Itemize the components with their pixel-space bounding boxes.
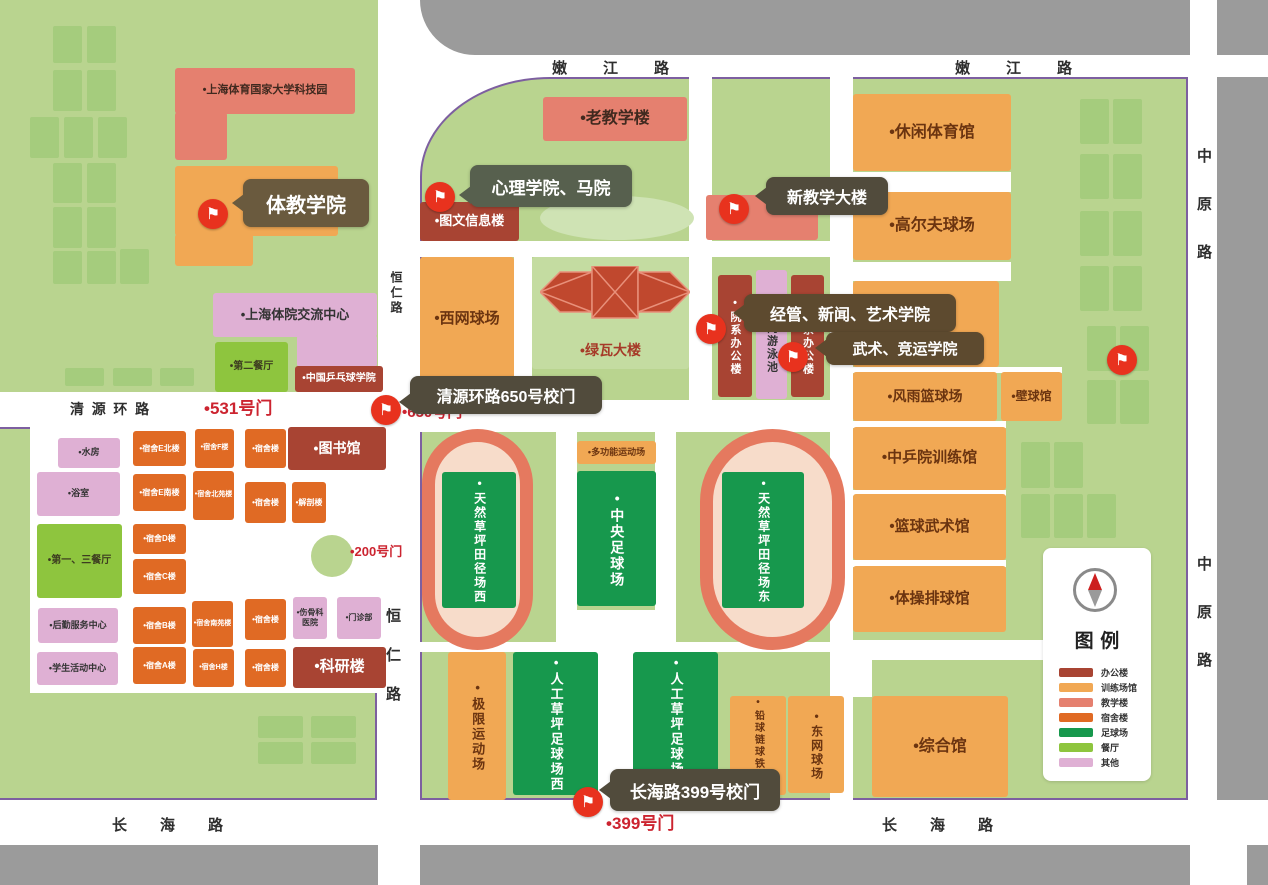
indoor-pool: •室内游泳池 bbox=[756, 270, 787, 399]
east-tennis-court: •东网球场 bbox=[788, 696, 844, 793]
tree-block bbox=[1080, 99, 1109, 144]
tooltip-xinli-xueyuan[interactable]: 心理学院、马院 bbox=[470, 165, 632, 207]
tree-block bbox=[1087, 380, 1116, 424]
dorm-b: •宿舍B楼 bbox=[133, 607, 186, 644]
natural-turf-west-label: •天然草坪田径场西 bbox=[472, 476, 485, 604]
library: •图书馆 bbox=[288, 427, 386, 470]
gymnastics-volleyball-hall-label: •体操排球馆 bbox=[889, 590, 969, 609]
tree-block bbox=[1080, 266, 1109, 311]
tree-block bbox=[1054, 494, 1083, 538]
sidewalk-zhongyuan bbox=[1190, 0, 1217, 885]
tree-block bbox=[258, 716, 303, 738]
tree-block bbox=[87, 163, 116, 203]
dorm-e-south-label: •宿舍E南楼 bbox=[139, 488, 179, 498]
dorm-1: •宿舍楼 bbox=[245, 429, 286, 468]
ctt-training-hall-label: •中乒院训练馆 bbox=[882, 449, 977, 468]
no2-dining-hall: •第二餐厅 bbox=[215, 342, 288, 392]
legend-label: 训练场馆 bbox=[1101, 681, 1137, 694]
tree-block bbox=[113, 368, 152, 386]
dorm-h-label: •宿舍H楼 bbox=[199, 664, 228, 673]
library-info-building-label: •图文信息楼 bbox=[435, 213, 505, 229]
tree-block bbox=[30, 117, 59, 158]
tijiao-college-wing bbox=[175, 234, 253, 266]
natural-turf-east: •天然草坪田径场东 bbox=[722, 472, 804, 608]
table-tennis-college-label: •中国乒乓球学院 bbox=[302, 373, 376, 386]
student-center-label: •学生活动中心 bbox=[49, 663, 106, 674]
flag-marker-gate-650[interactable]: ⚑ bbox=[371, 395, 401, 425]
tooltip-wushu-jingyun-pointer bbox=[815, 339, 827, 357]
dorm-4-label: •宿舍楼 bbox=[252, 663, 279, 673]
dorm-e-north: •宿舍E北楼 bbox=[133, 431, 186, 466]
tooltip-xinli-xueyuan-pointer bbox=[459, 186, 471, 204]
legend-item: 足球场 bbox=[1059, 726, 1128, 738]
dorm-a: •宿舍A楼 bbox=[133, 647, 186, 684]
basketball-wushu-hall: •篮球武术馆 bbox=[853, 494, 1006, 560]
exchange-center-wing bbox=[297, 335, 377, 367]
tree-block bbox=[53, 251, 82, 284]
inner-road-18 bbox=[420, 241, 830, 257]
water-room: •水房 bbox=[58, 438, 120, 468]
tree-block bbox=[160, 368, 194, 386]
legend-swatch bbox=[1059, 728, 1093, 737]
legend-item: 训练场馆 bbox=[1059, 681, 1137, 693]
clinic: •门诊部 bbox=[337, 597, 381, 639]
dorm-beiyuan-label: •宿舍北苑楼 bbox=[195, 491, 232, 500]
osteopathy-hospital: •伤骨科医院 bbox=[293, 597, 327, 639]
tree-block bbox=[311, 742, 356, 764]
anatomy-building: •解剖楼 bbox=[292, 482, 326, 523]
west-tennis-court-label: •西网球场 bbox=[434, 310, 499, 329]
legend-swatch bbox=[1059, 713, 1093, 722]
road-label-zhongyuan-bottom: 中原路 bbox=[1193, 556, 1214, 700]
extreme-sports-field: •极限运动场 bbox=[448, 652, 506, 800]
legend-label: 办公楼 bbox=[1101, 666, 1128, 679]
tooltip-wushu-jingyun[interactable]: 武术、竞运学院 bbox=[826, 332, 984, 365]
osteopathy-hospital-label: •伤骨科医院 bbox=[293, 608, 327, 628]
artificial-turf-west-label: •人工草坪足球场西 bbox=[548, 655, 562, 792]
campus-map: •上海体育国家大学科技园•上海体院交流中心•第二餐厅•中国乒乓球学院•水房•浴室… bbox=[0, 0, 1268, 885]
inner-road-10 bbox=[830, 640, 1045, 660]
tooltip-tijiao-xueyuan-pointer bbox=[232, 194, 244, 212]
dorm-d-label: •宿舍D楼 bbox=[143, 534, 176, 544]
compass-icon bbox=[1073, 568, 1117, 612]
tree-block bbox=[311, 716, 356, 738]
flag-marker-yuanxi-b[interactable]: ⚑ bbox=[778, 342, 808, 372]
legend-label: 餐厅 bbox=[1101, 741, 1119, 754]
road-changhai-corner bbox=[1247, 845, 1268, 885]
road-label-hengren-top: 恒仁路 bbox=[388, 271, 405, 316]
basketball-wushu-hall-label: •篮球武术馆 bbox=[889, 518, 969, 537]
legend-label: 其他 bbox=[1101, 756, 1119, 769]
no2-dining-hall-label: •第二餐厅 bbox=[230, 361, 274, 374]
loop-center bbox=[311, 535, 353, 577]
dorm-2: •宿舍楼 bbox=[245, 482, 286, 523]
road-label-changhai-west: 长海路 bbox=[112, 814, 256, 835]
library-label: •图书馆 bbox=[314, 440, 361, 458]
tree-block bbox=[87, 207, 116, 248]
tree-block bbox=[53, 207, 82, 248]
flag-marker-tijiao[interactable]: ⚑ bbox=[198, 199, 228, 229]
tree-block bbox=[1113, 99, 1142, 144]
west-tennis-court: •西网球场 bbox=[420, 257, 514, 381]
dorm-4: •宿舍楼 bbox=[245, 649, 286, 687]
science-park-label: •上海体育国家大学科技园 bbox=[203, 84, 328, 98]
east-tennis-court-label: •东网球场 bbox=[809, 709, 822, 781]
road-label-nenjiang-east: 嫩江路 bbox=[955, 57, 1108, 78]
road-changhai-east bbox=[420, 845, 1190, 885]
storm-basketball-court-label: •风雨篮球场 bbox=[888, 388, 963, 406]
legend-label: 足球场 bbox=[1101, 726, 1128, 739]
tree-block bbox=[1054, 442, 1083, 488]
gate-label-399: •399号门 bbox=[606, 809, 674, 834]
tree-block bbox=[1113, 211, 1142, 256]
inner-road-11 bbox=[850, 660, 872, 697]
dorm-h: •宿舍H楼 bbox=[193, 649, 234, 687]
no13-dining-hall-label: •第一、三餐厅 bbox=[48, 555, 112, 568]
dorm-beiyuan: •宿舍北苑楼 bbox=[193, 471, 234, 520]
inner-road-5 bbox=[853, 262, 1011, 281]
tree-block bbox=[1021, 442, 1050, 488]
table-tennis-college: •中国乒乓球学院 bbox=[295, 366, 383, 392]
legend-item: 教学楼 bbox=[1059, 696, 1128, 708]
dorm-c-label: •宿舍C楼 bbox=[143, 572, 176, 582]
gate-label-531: •531号门 bbox=[204, 394, 272, 419]
tree-block bbox=[65, 368, 104, 386]
legend-item: 宿舍楼 bbox=[1059, 711, 1128, 723]
tree-block bbox=[87, 26, 116, 63]
tree-block bbox=[258, 742, 303, 764]
dorm-f: •宿舍F楼 bbox=[195, 429, 234, 468]
comprehensive-hall-label: •综合馆 bbox=[913, 737, 967, 757]
tree-block bbox=[1080, 154, 1109, 199]
flag-marker-gate-399[interactable]: ⚑ bbox=[573, 787, 603, 817]
road-label-nenjiang-west: 嫩江路 bbox=[552, 57, 705, 78]
legend-swatch bbox=[1059, 683, 1093, 692]
tree-block bbox=[64, 117, 93, 158]
legend-swatch bbox=[1059, 758, 1093, 767]
student-center: •学生活动中心 bbox=[37, 652, 118, 685]
road-zhongyuan bbox=[1217, 0, 1268, 885]
tooltip-changhai-gate[interactable]: 长海路399号校门 bbox=[610, 769, 780, 811]
flag-marker-yuanxi-a[interactable]: ⚑ bbox=[696, 314, 726, 344]
tooltip-qingyuan-gate[interactable]: 清源环路650号校门 bbox=[410, 376, 602, 414]
dorm-nanyuan: •宿舍南苑楼 bbox=[192, 601, 233, 647]
legend-title: 图例 bbox=[1043, 626, 1151, 653]
gate-label-200: •200号门 bbox=[350, 541, 402, 560]
tree-block bbox=[53, 70, 82, 111]
science-park-wing bbox=[175, 112, 227, 160]
tree-block bbox=[53, 26, 82, 63]
dorm-3-label: •宿舍楼 bbox=[252, 615, 279, 625]
tooltip-jingguan-xinwen-pointer bbox=[733, 304, 745, 322]
bath-room-label: •浴室 bbox=[68, 488, 89, 499]
logistics-center: •后勤服务中心 bbox=[38, 608, 118, 643]
dorm-c: •宿舍C楼 bbox=[133, 559, 186, 594]
research-building: •科研楼 bbox=[293, 647, 386, 688]
lvwa-roof-icon bbox=[540, 266, 690, 324]
central-football-field-label: •中央足球场 bbox=[609, 490, 624, 588]
dorm-e-south: •宿舍E南楼 bbox=[133, 474, 186, 511]
flag-marker-xinjiaoxue[interactable]: ⚑ bbox=[719, 194, 749, 224]
research-building-label: •科研楼 bbox=[314, 658, 364, 677]
water-room-label: •水房 bbox=[78, 447, 99, 458]
tree-block bbox=[1120, 380, 1149, 424]
golf-course-label: •高尔夫球场 bbox=[889, 216, 975, 236]
clinic-label: •门诊部 bbox=[346, 613, 373, 623]
road-qingyuan bbox=[0, 392, 378, 427]
road-label-qingyuan: 清源环路 bbox=[70, 399, 157, 419]
dorm-nanyuan-label: •宿舍南苑楼 bbox=[194, 620, 231, 629]
science-park: •上海体育国家大学科技园 bbox=[175, 68, 355, 114]
tree-block bbox=[1021, 494, 1050, 538]
tree-block bbox=[1080, 211, 1109, 256]
tree-block bbox=[98, 117, 127, 158]
squash-hall: •壁球馆 bbox=[1001, 372, 1062, 421]
old-teaching-building: •老教学楼 bbox=[543, 97, 687, 141]
dorm-1-label: •宿舍楼 bbox=[252, 444, 279, 454]
tree-block bbox=[87, 70, 116, 111]
legend-swatch bbox=[1059, 698, 1093, 707]
dorm-d: •宿舍D楼 bbox=[133, 524, 186, 554]
road-gap-southeast bbox=[1190, 845, 1247, 885]
dorm-e-north-label: •宿舍E北楼 bbox=[139, 444, 179, 454]
tree-block bbox=[120, 249, 149, 284]
tooltip-jingguan-xinwen[interactable]: 经管、新闻、艺术学院 bbox=[744, 294, 956, 332]
road-label-changhai-east: 长海路 bbox=[882, 814, 1026, 835]
leisure-sports-gym: •休闲体育馆 bbox=[853, 94, 1011, 171]
road-nenjiang bbox=[420, 0, 1268, 55]
old-teaching-building-label: •老教学楼 bbox=[580, 109, 650, 129]
legend-panel: 图例 办公楼训练场馆教学楼宿舍楼足球场餐厅其他 bbox=[1043, 548, 1151, 781]
legend-swatch bbox=[1059, 743, 1093, 752]
dorm-a-label: •宿舍A楼 bbox=[143, 661, 176, 671]
gymnastics-volleyball-hall: •体操排球馆 bbox=[853, 566, 1006, 632]
legend-label: 宿舍楼 bbox=[1101, 711, 1128, 724]
road-label-hengren-bottom: 恒仁路 bbox=[382, 608, 403, 725]
bath-room: •浴室 bbox=[37, 472, 120, 516]
flag-marker-tuwen[interactable]: ⚑ bbox=[425, 182, 455, 212]
storm-basketball-court: •风雨篮球场 bbox=[853, 372, 997, 421]
multifunction-field-label: •多功能运动场 bbox=[588, 447, 645, 458]
exchange-center: •上海体院交流中心 bbox=[213, 293, 377, 337]
anatomy-building-label: •解剖楼 bbox=[296, 498, 323, 508]
dorm-3: •宿舍楼 bbox=[245, 599, 286, 640]
ctt-training-hall: •中乒院训练馆 bbox=[853, 427, 1006, 490]
no13-dining-hall: •第一、三餐厅 bbox=[37, 524, 122, 598]
tree-block bbox=[53, 163, 82, 203]
legend-item: 餐厅 bbox=[1059, 741, 1119, 753]
dorm-b-label: •宿舍B楼 bbox=[143, 621, 176, 631]
tree-block bbox=[1113, 266, 1142, 311]
road-changhai-west bbox=[0, 845, 378, 885]
squash-hall-label: •壁球馆 bbox=[1011, 389, 1051, 404]
extreme-sports-field-label: •极限运动场 bbox=[470, 680, 484, 772]
legend-swatch bbox=[1059, 668, 1093, 677]
natural-turf-west: •天然草坪田径场西 bbox=[442, 472, 516, 608]
exchange-center-label: •上海体院交流中心 bbox=[241, 307, 350, 323]
artificial-turf-west: •人工草坪足球场西 bbox=[513, 652, 598, 795]
dorm-f-label: •宿舍F楼 bbox=[201, 444, 229, 453]
tree-block bbox=[1113, 154, 1142, 199]
tooltip-xin-jiaoxue-dalou-pointer bbox=[755, 187, 767, 205]
legend-item: 办公楼 bbox=[1059, 666, 1128, 678]
leisure-sports-gym-label: •休闲体育馆 bbox=[889, 123, 975, 143]
road-label-zhongyuan-top: 中原路 bbox=[1193, 148, 1214, 292]
tooltip-xin-jiaoxue-dalou[interactable]: 新教学大楼 bbox=[766, 177, 888, 215]
central-football-field: •中央足球场 bbox=[577, 471, 656, 606]
flag-marker-east[interactable]: ⚑ bbox=[1107, 345, 1137, 375]
lvwa-building-label: •绿瓦大楼 bbox=[580, 342, 641, 360]
tree-block bbox=[1087, 494, 1116, 538]
tree-block bbox=[87, 251, 116, 284]
dorm-2-label: •宿舍楼 bbox=[252, 498, 279, 508]
natural-turf-east-label: •天然草坪田径场东 bbox=[756, 476, 769, 604]
legend-label: 教学楼 bbox=[1101, 696, 1128, 709]
tooltip-tijiao-xueyuan[interactable]: 体教学院 bbox=[243, 179, 369, 227]
sidewalk-nenjiang bbox=[408, 55, 1268, 77]
logistics-center-label: •后勤服务中心 bbox=[49, 620, 106, 631]
comprehensive-hall: •综合馆 bbox=[872, 696, 1008, 797]
multifunction-field: •多功能运动场 bbox=[577, 441, 656, 464]
legend-item: 其他 bbox=[1059, 756, 1119, 768]
